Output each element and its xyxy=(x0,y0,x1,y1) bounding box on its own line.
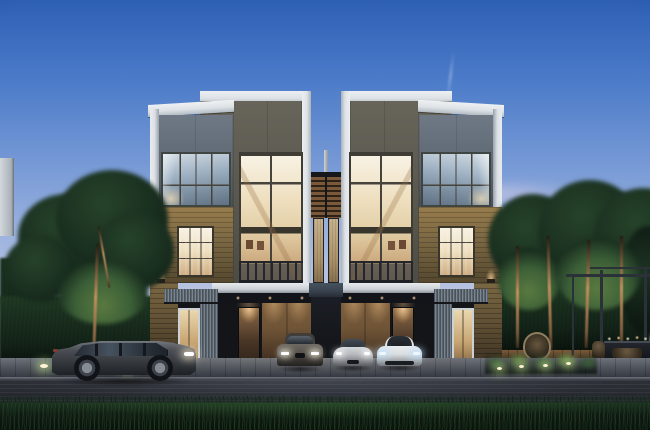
dusk-townhouse-render xyxy=(0,0,650,430)
car-sedan xyxy=(277,333,323,371)
downlight-dots xyxy=(230,295,310,301)
ground-path-light xyxy=(40,364,48,368)
curtained-window xyxy=(313,218,324,283)
downlight-dots xyxy=(342,295,422,301)
bridge-slab xyxy=(309,283,343,297)
townhouse-unit-right xyxy=(341,85,502,370)
corrugated-awning xyxy=(434,289,488,304)
pergola-beam xyxy=(590,267,650,269)
sedan-grille xyxy=(295,353,305,358)
sedan-headlight xyxy=(311,352,319,355)
suv-front-wheel xyxy=(147,355,173,381)
uplit-shrubs xyxy=(485,346,597,374)
corner-glass-window xyxy=(161,152,231,207)
car-sports xyxy=(333,339,373,370)
corrugated-awning xyxy=(164,289,218,304)
shrub-uplight xyxy=(566,362,571,365)
sedan-windshield xyxy=(287,336,313,344)
suv-rear-wheel xyxy=(74,355,100,381)
center-post xyxy=(324,150,328,174)
balcony-railing xyxy=(349,261,413,283)
hybrid-headlight xyxy=(413,352,420,355)
tree-trunk xyxy=(516,246,519,348)
suv-taillight xyxy=(53,349,58,352)
sports-headlight xyxy=(336,352,342,355)
grass-verge xyxy=(0,402,650,430)
shrub-uplight xyxy=(519,365,524,368)
car-hybrid xyxy=(377,336,422,370)
shrub-uplight xyxy=(497,367,502,370)
dining-chairs-row xyxy=(612,348,642,358)
white-floor-slab xyxy=(341,283,440,293)
corner-glass-window xyxy=(421,152,491,207)
table-candles xyxy=(606,334,648,342)
brick-lit-window xyxy=(177,226,214,277)
car-shadow xyxy=(277,365,323,373)
sports-headlight xyxy=(364,352,370,355)
sports-intake xyxy=(347,360,359,364)
car-shadow xyxy=(54,375,196,387)
inner-white-pillar xyxy=(302,91,311,288)
wall-art-frames xyxy=(246,240,253,249)
balcony-railing xyxy=(239,261,303,283)
neighbour-building-corner xyxy=(0,158,14,236)
tree-canopy-lit xyxy=(58,262,148,324)
tree-trunk xyxy=(620,236,623,350)
hybrid-headlight xyxy=(379,352,386,355)
pergola-beam xyxy=(566,274,650,277)
pergola-post xyxy=(572,276,574,356)
suv-headlight xyxy=(184,352,194,356)
hybrid-lower-band xyxy=(385,361,414,365)
brick-lit-window xyxy=(438,226,475,277)
shrub-uplight xyxy=(543,364,548,367)
white-floor-slab xyxy=(212,283,311,293)
wall-art-frames xyxy=(399,240,406,249)
car-suv xyxy=(52,327,196,387)
timber-louvre-screen xyxy=(311,172,341,218)
sedan-headlight xyxy=(281,352,289,355)
curtained-window xyxy=(328,218,339,283)
